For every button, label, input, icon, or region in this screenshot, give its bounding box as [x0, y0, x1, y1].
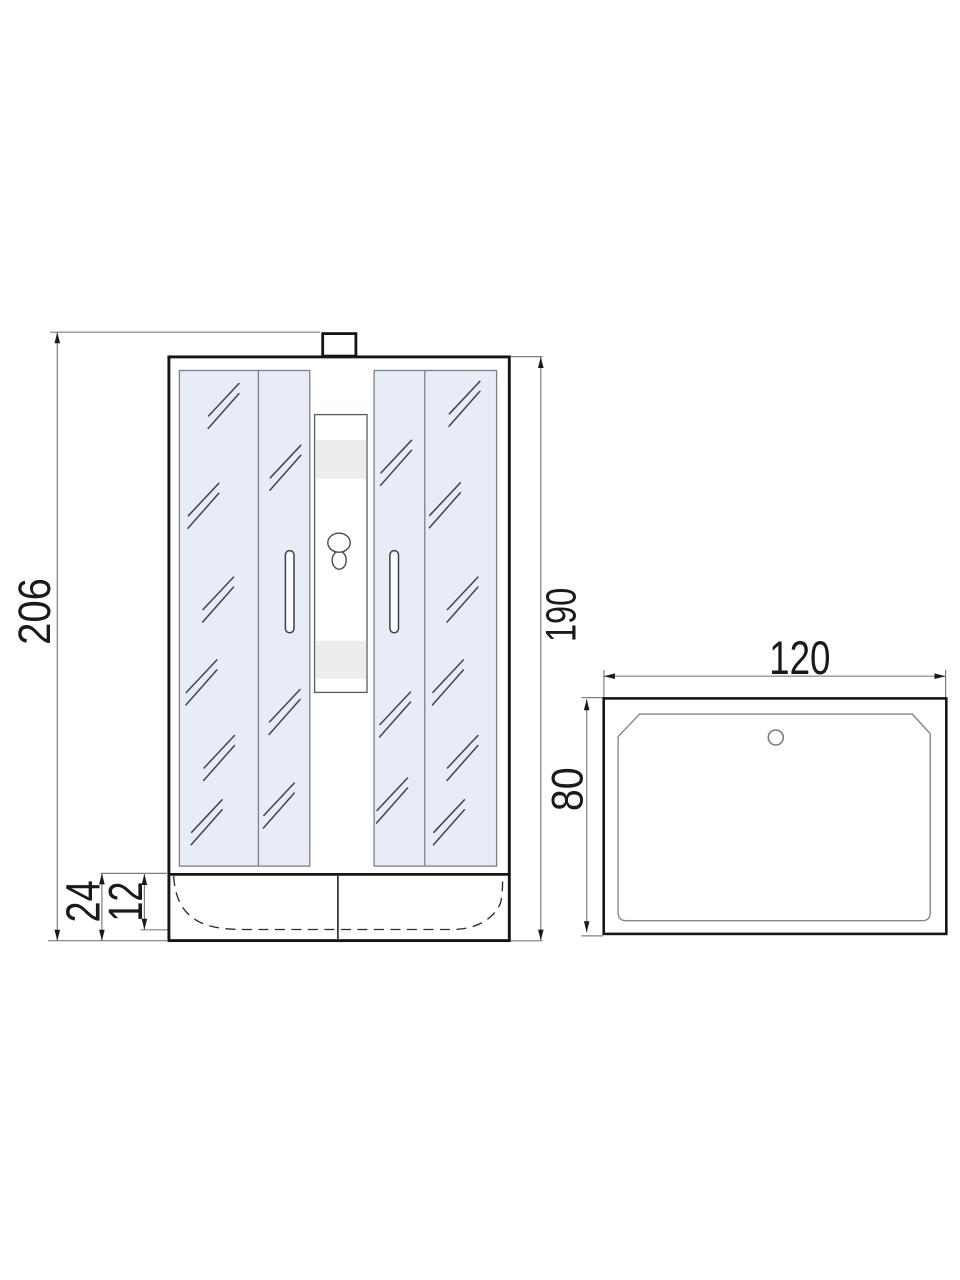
svg-text:12: 12 — [99, 882, 152, 922]
svg-text:120: 120 — [769, 632, 830, 684]
svg-text:190: 190 — [537, 588, 585, 642]
svg-text:206: 206 — [10, 578, 61, 645]
svg-text:80: 80 — [542, 767, 592, 811]
